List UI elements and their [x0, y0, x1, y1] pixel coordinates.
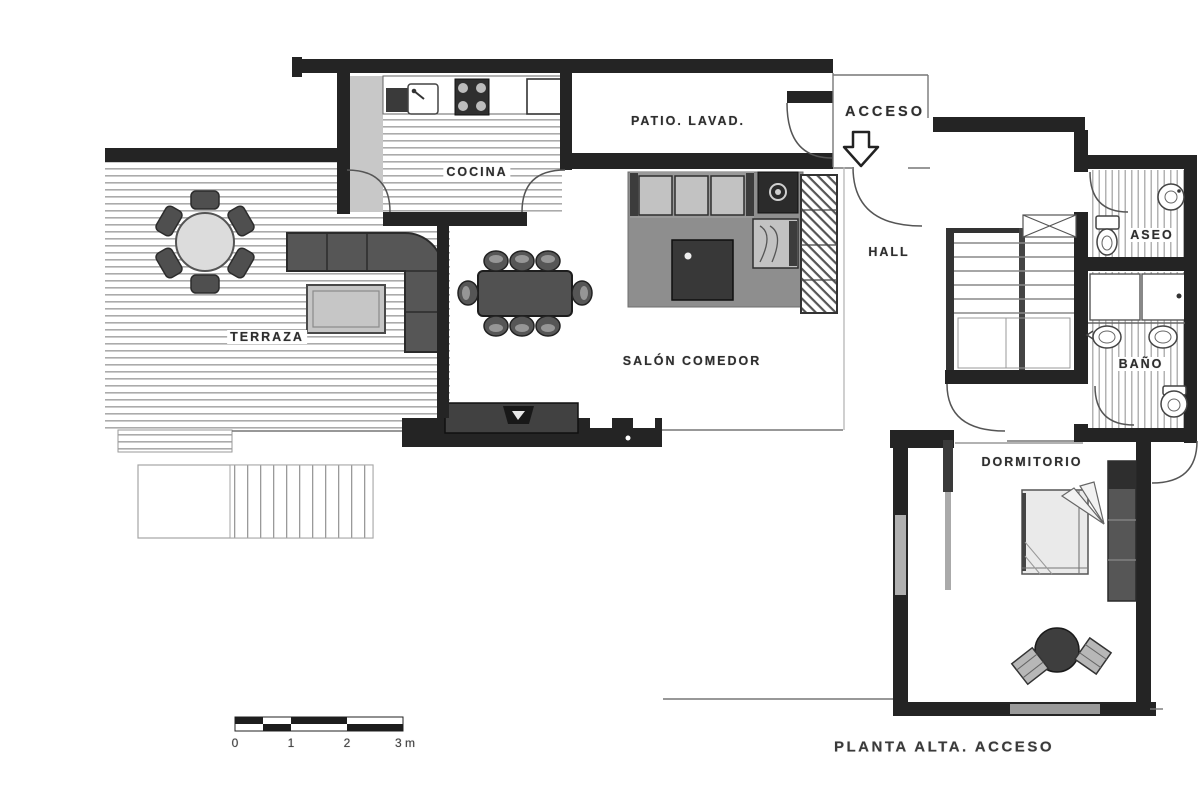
scale-tick-3: 3 m: [395, 736, 415, 750]
aseo-toilet: [1096, 216, 1119, 255]
plan-title: PLANTA ALTA. ACCESO: [834, 739, 1054, 756]
bed: [1022, 482, 1104, 574]
door-dormitorio: [1152, 441, 1197, 483]
room-label-acceso: ACCESO: [845, 104, 925, 120]
dining-table: [478, 271, 572, 316]
coffee-table: [672, 240, 733, 300]
room-label-terraza: TERRAZA: [227, 330, 307, 344]
wall-terraza-north: [105, 148, 340, 162]
room-label-patio: PATIO. LAVAD.: [631, 114, 745, 128]
floor-plan: COCINA PATIO. LAVAD. ACCESO TERRAZA SALÓ…: [0, 0, 1200, 800]
aseo-washbasin: [1158, 184, 1184, 210]
fireplace: [758, 172, 798, 213]
fridge: [527, 79, 562, 114]
shower-tray: [1090, 274, 1140, 320]
scale-tick-2: 2: [344, 736, 351, 750]
room-label-cocina: COCINA: [443, 165, 510, 179]
scale-tick-0: 0: [232, 736, 239, 750]
room-label-bano: BAÑO: [1116, 357, 1167, 371]
staircase: [946, 215, 1076, 370]
room-label-hall: HALL: [868, 245, 909, 259]
sofa: [630, 172, 754, 218]
wardrobe: [1108, 461, 1136, 601]
armchair: [753, 219, 798, 268]
stair-break-mark: [1023, 215, 1076, 237]
scale-bar: [235, 717, 403, 731]
outdoor-ottoman: [307, 285, 385, 333]
room-label-aseo: ASEO: [1127, 228, 1176, 242]
bano-toilet: [1161, 386, 1187, 417]
outdoor-round-table: [176, 213, 234, 271]
exterior-steps: [138, 465, 373, 538]
wall-top-north: [293, 59, 833, 73]
floor-plan-drawing: [0, 0, 1200, 800]
sideboard-tv: [445, 403, 578, 433]
room-label-dormitorio: DORMITORIO: [981, 455, 1082, 469]
door-hall-dormitorio: [947, 384, 1005, 431]
stove: [455, 79, 489, 115]
door-acceso-hall: [853, 167, 922, 226]
door-patio: [787, 103, 832, 158]
scale-tick-1: 1: [288, 736, 295, 750]
kitchen-sink: [386, 84, 438, 114]
room-label-salon: SALÓN COMEDOR: [623, 354, 762, 368]
shelf-unit: [801, 175, 837, 313]
entry-arrow-icon: [844, 132, 878, 166]
